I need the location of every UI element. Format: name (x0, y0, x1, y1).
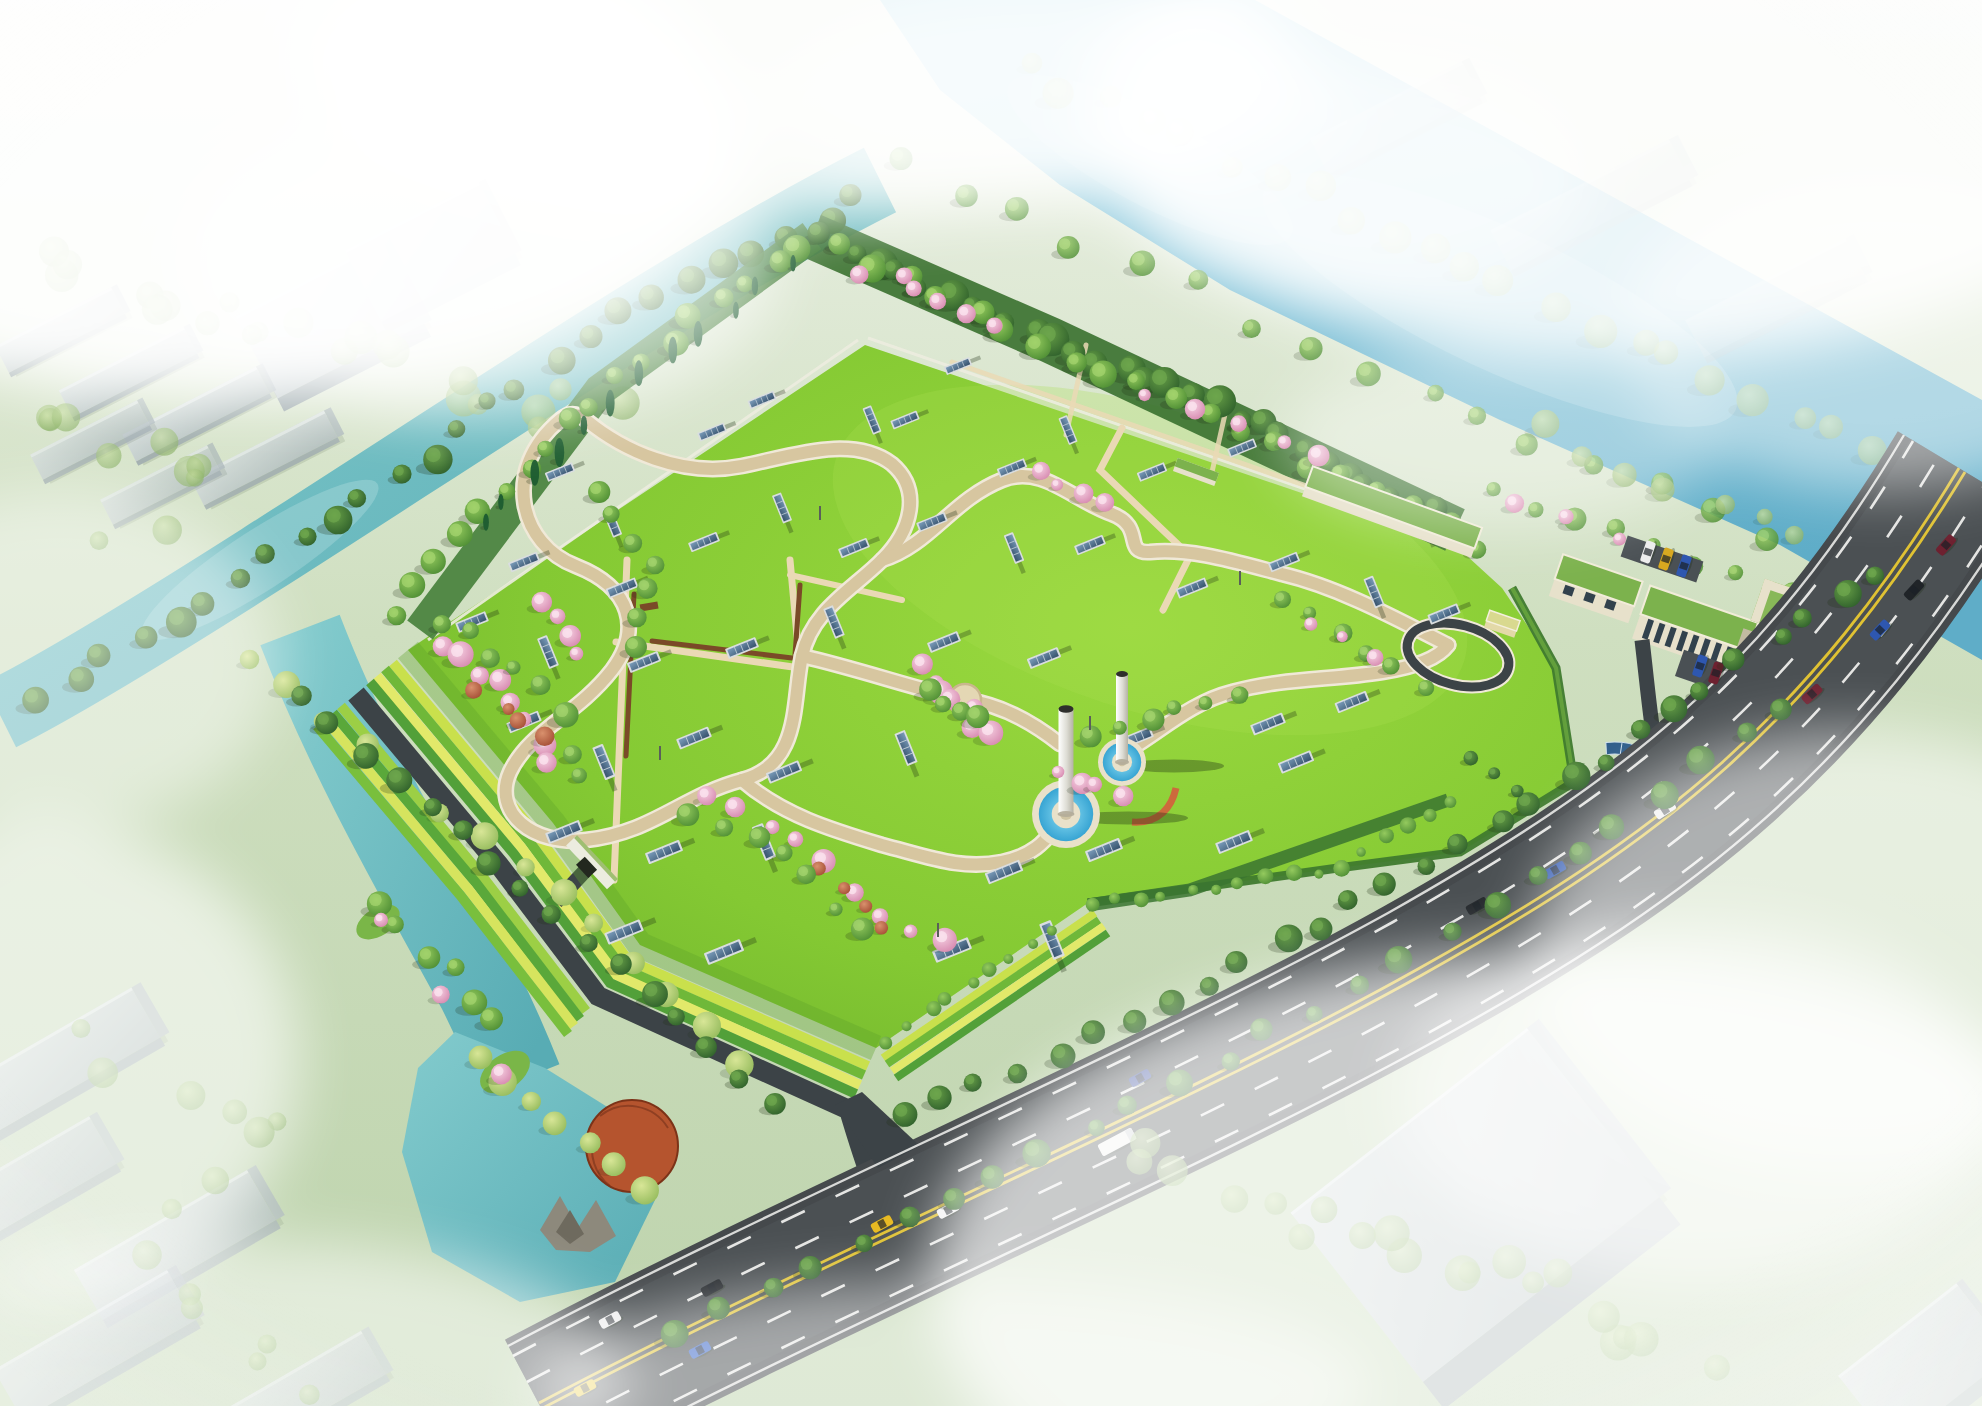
rendering-stage (0, 0, 1982, 1406)
vignette (0, 0, 1982, 1406)
aerial-rendering (0, 0, 1982, 1406)
